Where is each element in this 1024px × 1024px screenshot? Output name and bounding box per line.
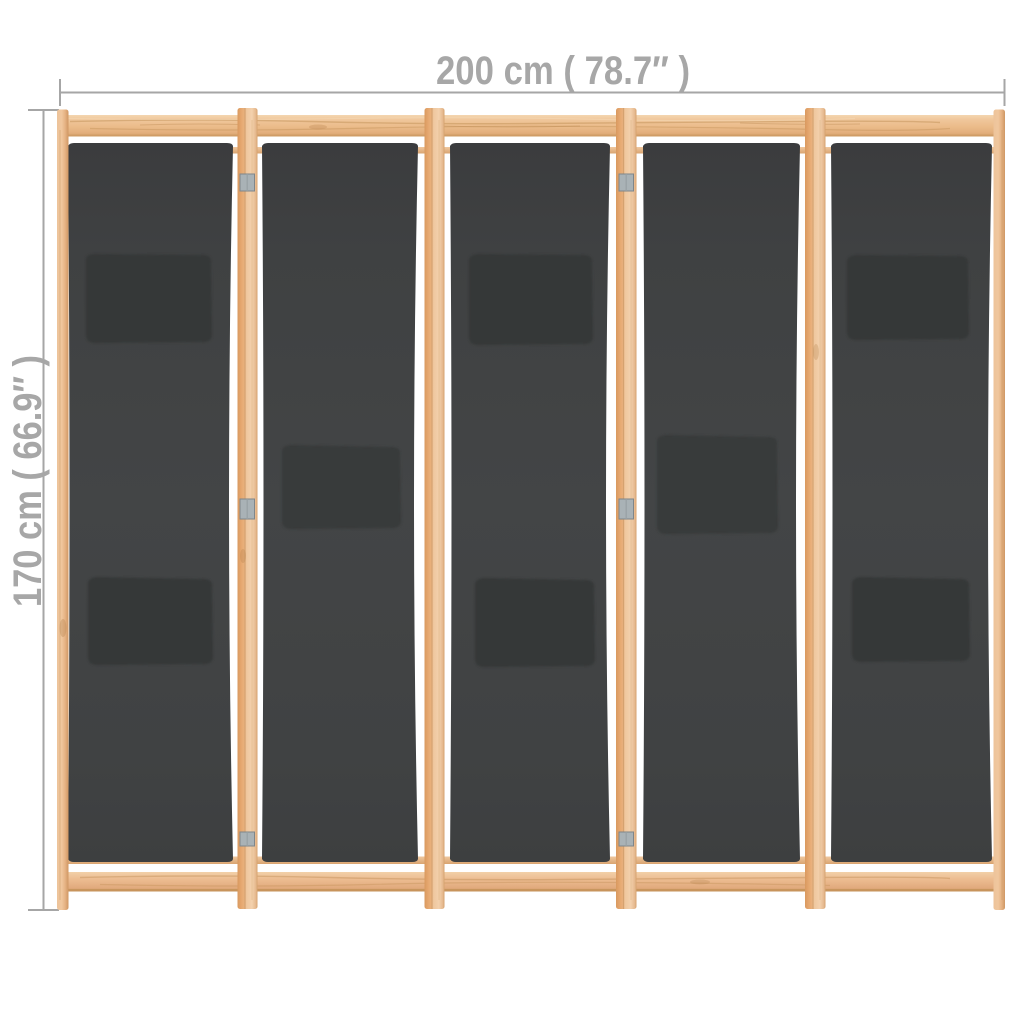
svg-text:200 cm ( 78.7″ ): 200 cm ( 78.7″ )	[436, 49, 690, 93]
